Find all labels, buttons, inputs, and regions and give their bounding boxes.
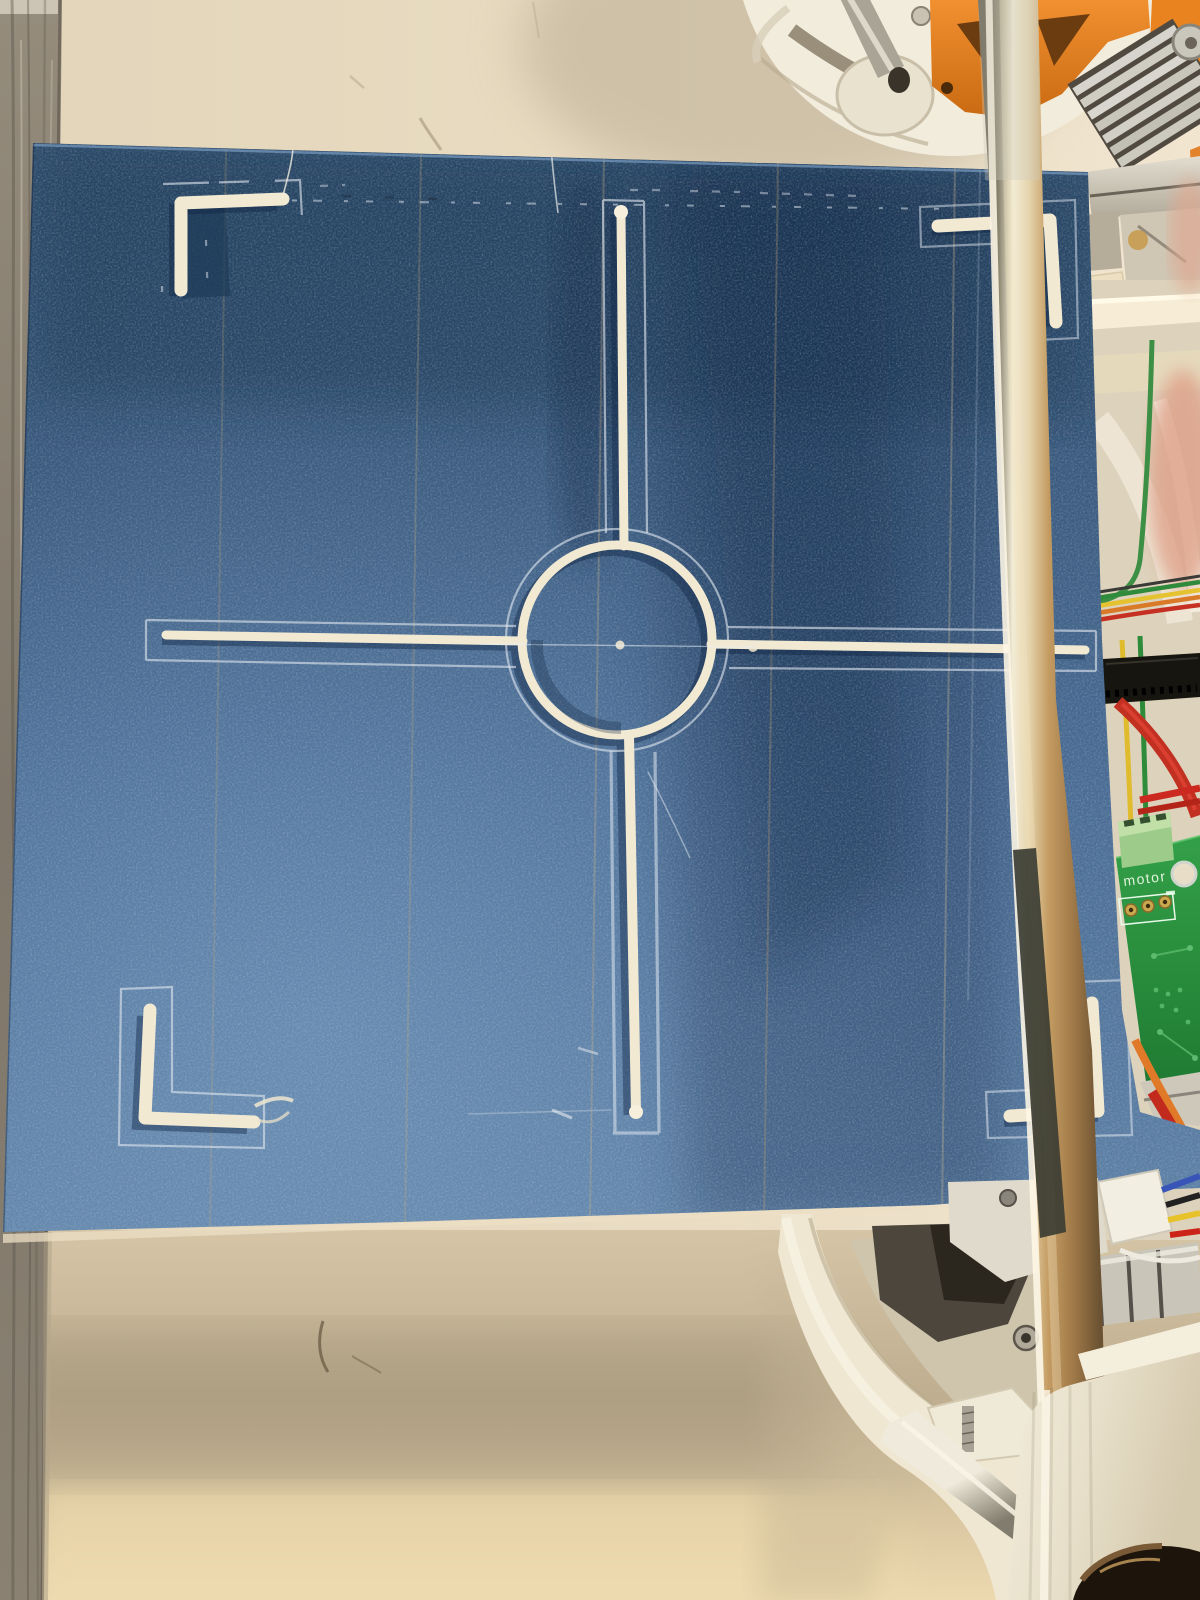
heatsink-end-hole bbox=[1185, 37, 1197, 49]
pcb-mounting-hole bbox=[1172, 862, 1196, 886]
block-highlight bbox=[1044, 1390, 1046, 1600]
red-wire bbox=[1170, 1231, 1200, 1235]
left-arm bbox=[166, 635, 523, 641]
bolt-head bbox=[912, 7, 930, 25]
rod-silver-top bbox=[978, 0, 1040, 180]
wire-connector bbox=[1098, 1170, 1172, 1244]
brass-fitting bbox=[1128, 230, 1148, 250]
bottom-arm bbox=[629, 735, 636, 1112]
top-arm bbox=[621, 213, 624, 546]
wood-grain bbox=[12, 0, 15, 1600]
motor-screw bbox=[1000, 1190, 1016, 1206]
table-shadow-band bbox=[0, 1330, 820, 1480]
socket-screw-center bbox=[1021, 1333, 1031, 1343]
orange-bracket-hole bbox=[941, 82, 953, 94]
photo-3d-printer-bed: motor bbox=[0, 0, 1200, 1600]
hub-screw bbox=[888, 67, 910, 93]
